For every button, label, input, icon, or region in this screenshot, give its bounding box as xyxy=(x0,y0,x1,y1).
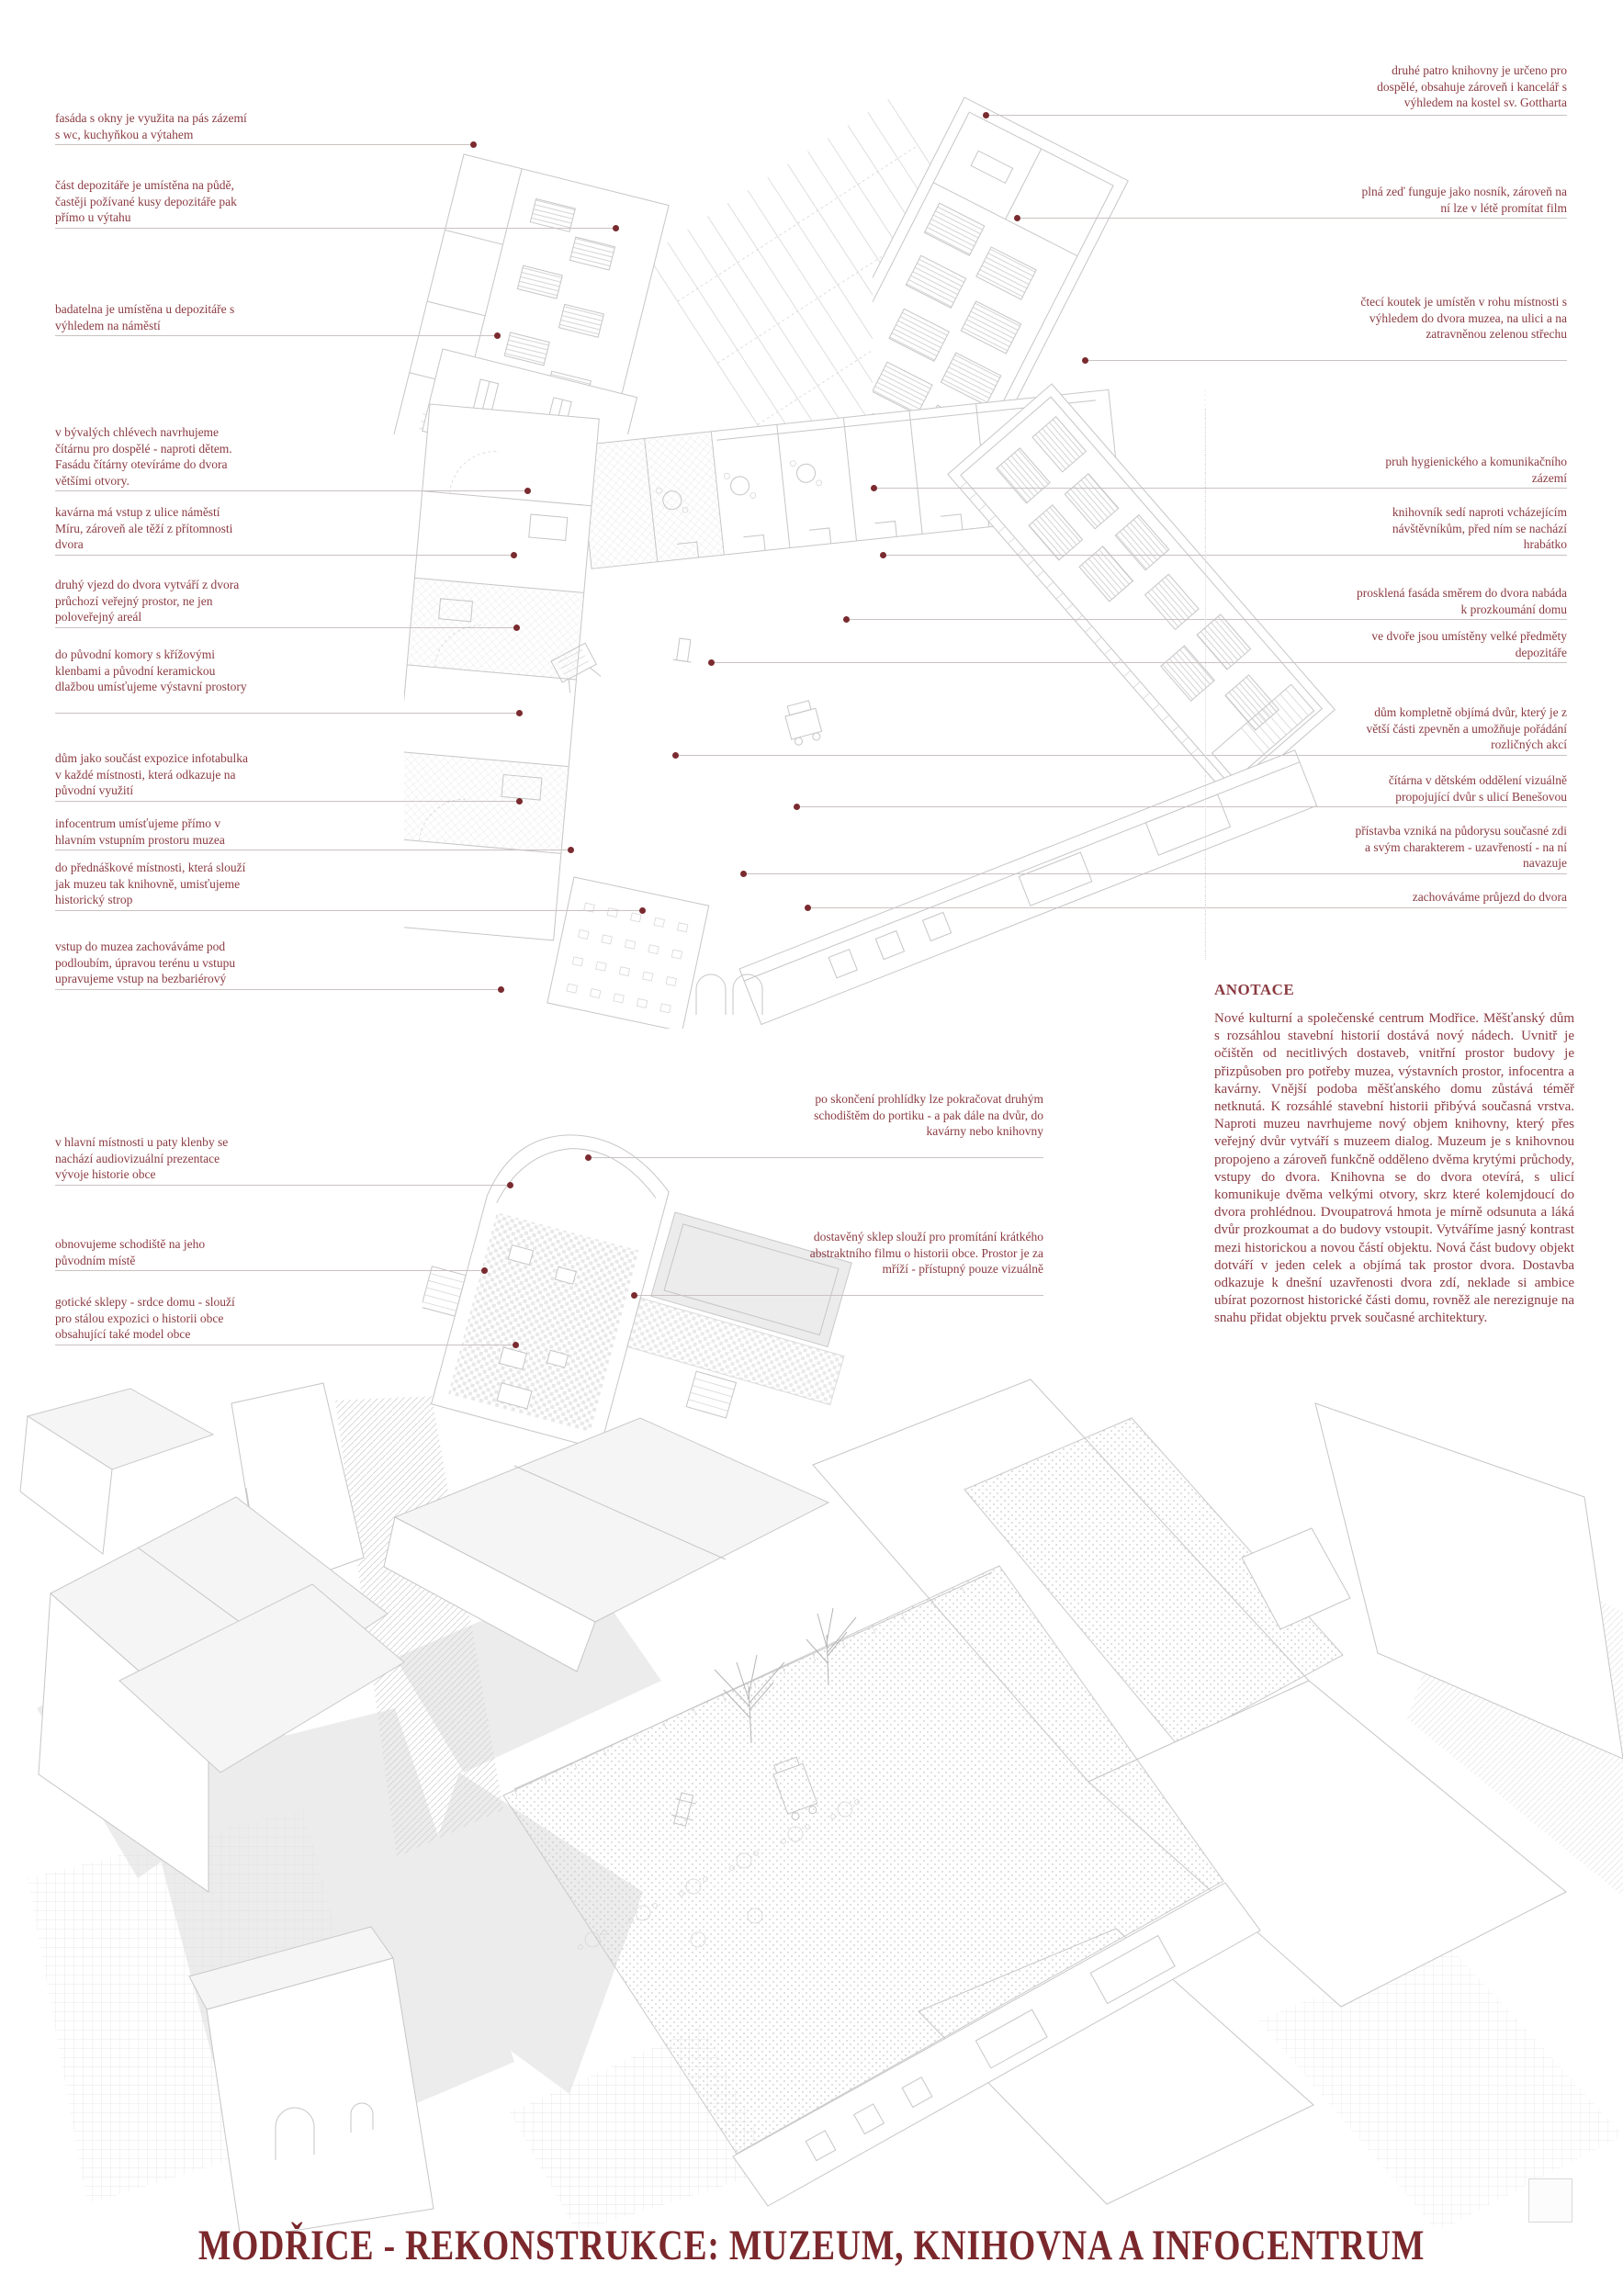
anotace-paragraph: Nové kulturní a společenské centrum Modř… xyxy=(1214,1010,1574,1328)
leader-line xyxy=(55,555,514,556)
drawing-main-axonometric xyxy=(404,367,1378,1029)
leader-line xyxy=(635,1295,1043,1296)
museum-left-wing xyxy=(404,404,599,940)
leader-line xyxy=(1018,218,1567,219)
annotation-left-1: fasáda s okny je využita na pás zázemí s… xyxy=(55,110,248,142)
leader-line xyxy=(847,619,1567,620)
courtyard-lectern xyxy=(673,637,694,662)
annotation-left-8: dům jako součást expozice infotabulka v … xyxy=(55,750,248,799)
leader-line xyxy=(55,1185,511,1186)
annotation-left-4: v bývalých chlévech navrhujeme čítárnu p… xyxy=(55,424,248,489)
annotation-right-10: přístavba vzniká na půdorysu současné zd… xyxy=(1350,823,1567,872)
annotation-right-5: knihovník sedí naproti vcházejícím návšt… xyxy=(1350,504,1567,553)
annotation-left-9: infocentrum umísťujeme přímo v hlavním v… xyxy=(55,816,248,848)
leader-line xyxy=(55,1270,485,1271)
leader-line xyxy=(55,1345,516,1345)
annotation-left-10: do přednáškové místnosti, která slouží j… xyxy=(55,860,248,908)
leader-line xyxy=(1086,360,1567,361)
leader-line xyxy=(874,488,1567,489)
annotation-left-14: gotické sklepy - srdce domu - slouží pro… xyxy=(55,1294,248,1343)
annotation-left-11: vstup do muzea zachováváme pod podloubím… xyxy=(55,939,248,987)
annotation-left-3: badatelna je umístěna u depozitáře s výh… xyxy=(55,301,248,333)
leader-line xyxy=(55,910,643,911)
anotace-heading: ANOTACE xyxy=(1214,981,1294,999)
annotation-left-6: druhý vjezd do dvora vytváří z dvora prů… xyxy=(55,577,248,625)
annotation-right-11: zachováváme průjezd do dvora xyxy=(1350,889,1567,906)
annotation-left-12: v hlavní místnosti u paty klenby se nach… xyxy=(55,1134,248,1183)
annotation-right-8: dům kompletně objímá dvůr, který je z vě… xyxy=(1350,704,1567,753)
leader-line xyxy=(55,228,616,229)
annotation-right-3: čtecí koutek je umístěn v rohu místnosti… xyxy=(1350,294,1567,343)
library-wing xyxy=(948,384,1336,800)
annotation-right-7: ve dvoře jsou umístěny velké předměty de… xyxy=(1350,628,1567,660)
annotation-right-2: plná zeď funguje jako nosník, zároveň na… xyxy=(1350,184,1567,216)
annotation-right-1: druhé patro knihovny je určeno pro dospě… xyxy=(1350,62,1567,111)
leader-line xyxy=(986,115,1567,116)
leader-line xyxy=(55,335,498,336)
leader-line xyxy=(55,627,517,628)
leader-line xyxy=(55,850,571,850)
annotation-left-5: kavárna má vstup z ulice náměstí Míru, z… xyxy=(55,504,248,553)
annotation-right-6: prosklená fasáda směrem do dvora nabáda … xyxy=(1350,585,1567,617)
lecture-room xyxy=(547,877,709,1029)
corner-logo-placeholder xyxy=(1528,2178,1572,2223)
leader-line xyxy=(808,907,1567,908)
poster-title: MODŘICE - REKONSTRUKCE: MUZEUM, KNIHOVNA… xyxy=(163,2221,1461,2270)
poster-board: fasáda s okny je využita na pás zázemí s… xyxy=(0,0,1623,2296)
construction-dotted-line xyxy=(1205,409,1206,960)
annotation-left-2: část depozitáře je umístěna na půdě, čas… xyxy=(55,177,248,226)
annotation-right-4: pruh hygienického a komunikačního zázemí xyxy=(1350,454,1567,486)
leader-line xyxy=(797,806,1567,807)
annotation-middle-2: dostavěný sklep slouží pro promítání krá… xyxy=(808,1229,1043,1277)
leader-line xyxy=(55,713,520,714)
leader-line xyxy=(55,989,502,990)
leader-line xyxy=(744,873,1567,874)
annotation-middle-1: po skončení prohlídky lze pokračovat dru… xyxy=(808,1091,1043,1140)
courtyard-cart xyxy=(783,700,823,747)
leader-line xyxy=(55,144,474,145)
leader-line xyxy=(55,490,528,491)
leader-line xyxy=(589,1157,1043,1158)
leader-line xyxy=(884,555,1567,556)
drawing-site-axonometric xyxy=(0,1378,1623,2232)
leader-line xyxy=(55,801,520,802)
leader-line xyxy=(712,662,1567,663)
annotation-left-7: do původní komory s křížovými klenbami a… xyxy=(55,647,248,695)
annotation-right-9: čítárna v dětském oddělení vizuálně prop… xyxy=(1350,772,1567,805)
annotation-left-13: obnovujeme schodiště na jeho původním mí… xyxy=(55,1236,248,1268)
leader-line xyxy=(676,755,1567,756)
